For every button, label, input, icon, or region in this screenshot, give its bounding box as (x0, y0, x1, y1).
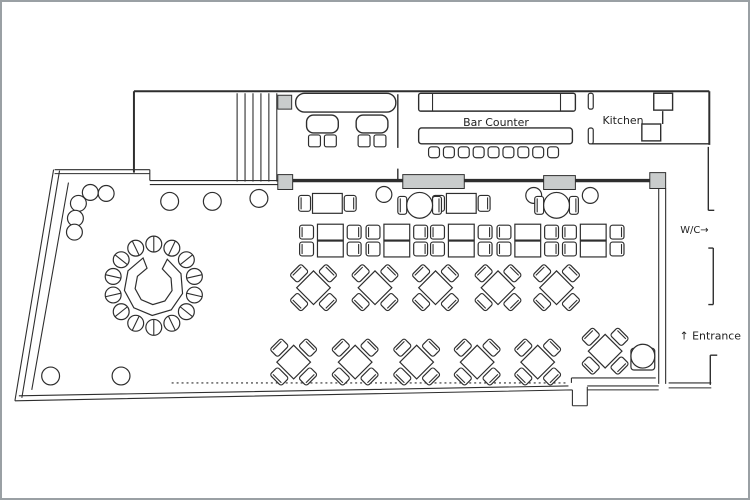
table (631, 344, 655, 368)
table-2top (299, 193, 357, 213)
lounge-stool (358, 135, 370, 147)
chair (478, 195, 490, 211)
planter (544, 176, 576, 190)
table-4top-diagonal (462, 251, 535, 324)
bar-stool (503, 147, 514, 158)
table-4top-diagonal (399, 251, 472, 324)
bar-counter-label: Bar Counter (463, 116, 529, 129)
lounge-stool (309, 135, 321, 147)
table (384, 241, 410, 257)
post (203, 192, 221, 210)
table (515, 224, 541, 240)
post (42, 367, 60, 385)
booth-unit (300, 224, 362, 257)
booth-unit (497, 224, 559, 257)
table (580, 224, 606, 240)
table (317, 224, 343, 240)
kitchen-label: Kitchen (603, 114, 644, 127)
table (448, 224, 474, 240)
floor-plan: Bar Counter Kitchen W/C→ ↑ Entrance (2, 2, 748, 498)
lounge-seat-unit (356, 115, 388, 147)
chair (433, 196, 442, 214)
kitchen-door-jamb (588, 93, 593, 109)
post (70, 195, 86, 211)
post (582, 188, 598, 204)
lounge-seats (307, 115, 388, 147)
table-4top-diagonal (339, 251, 412, 324)
table (446, 193, 476, 213)
table-round (535, 192, 579, 218)
bar-stool (443, 147, 454, 158)
table-round (398, 192, 442, 218)
entrance-table (631, 344, 655, 370)
planter (403, 175, 465, 189)
chair (535, 196, 544, 214)
bar-stool (488, 147, 499, 158)
lounge-seat-unit (307, 115, 339, 147)
staircase (237, 93, 277, 181)
post (66, 224, 82, 240)
column (650, 173, 666, 189)
bar-stool (548, 147, 559, 158)
bar-stool (533, 147, 544, 158)
post (250, 189, 268, 207)
back-bar (419, 93, 576, 111)
table (580, 241, 606, 257)
post (112, 367, 130, 385)
bar-counter (419, 128, 573, 144)
table (515, 241, 541, 257)
lounge-stool (324, 135, 336, 147)
booth-unit (366, 224, 428, 257)
table-4top-diagonal (257, 326, 330, 399)
bar-stool (473, 147, 484, 158)
table-4top-diagonal (277, 251, 350, 324)
table (544, 192, 570, 218)
entrance-label: ↑ Entrance (680, 329, 742, 342)
wc-label: W/C→ (680, 225, 708, 236)
post (376, 187, 392, 203)
bar-stool (518, 147, 529, 158)
table-4top-diagonal (380, 326, 453, 399)
bar-stool (458, 147, 469, 158)
kitchen-equipment (654, 93, 673, 110)
table (448, 241, 474, 257)
lounge-sofa (296, 93, 396, 112)
column (278, 95, 292, 109)
chair (398, 196, 407, 214)
bar-stool (429, 147, 440, 158)
table-4top-diagonal (520, 251, 593, 324)
chair (569, 196, 578, 214)
dining-tables (257, 192, 655, 398)
lounge-table (307, 115, 339, 133)
kitchen-equipment (642, 124, 661, 141)
floor-plan-image: Bar Counter Kitchen W/C→ ↑ Entrance (0, 0, 750, 500)
table-4top-diagonal (319, 326, 392, 399)
kitchen-door-jamb (588, 128, 593, 144)
round-bar-counter (124, 258, 182, 316)
table-4top-diagonal (501, 326, 574, 399)
booth-unit (431, 224, 493, 257)
post (161, 192, 179, 210)
bar-stools (429, 147, 559, 158)
lounge-stool (374, 135, 386, 147)
table (407, 192, 433, 218)
lounge-table (356, 115, 388, 133)
column (278, 175, 293, 190)
chair (344, 195, 356, 211)
round-bar (105, 236, 202, 335)
table (317, 241, 343, 257)
chair (299, 195, 311, 211)
table (384, 224, 410, 240)
post (98, 186, 114, 202)
fixtures (278, 93, 673, 189)
booth-unit (562, 224, 624, 257)
table (313, 193, 343, 213)
